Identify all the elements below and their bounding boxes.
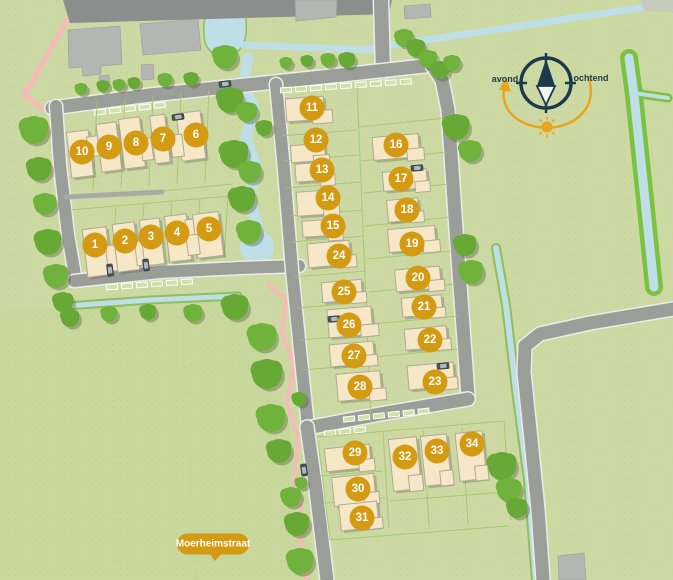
parked-car — [142, 259, 149, 272]
parking-strip — [166, 280, 177, 286]
plot-badge-21[interactable]: 21 — [412, 295, 437, 320]
parking-strip — [181, 279, 192, 285]
plot-number: 1 — [92, 239, 99, 251]
parking-strip — [354, 427, 365, 433]
plot-badge-8[interactable]: 8 — [124, 131, 149, 156]
site-plan-map: 1234567891011121314151617181920212223242… — [0, 0, 673, 580]
plot-badge-3[interactable]: 3 — [139, 225, 164, 250]
parking-strip — [358, 414, 369, 420]
plot-number: 6 — [193, 129, 199, 141]
plot-number: 23 — [429, 376, 442, 388]
parking-strip — [400, 79, 411, 85]
existing-building — [141, 64, 154, 80]
parking-strip — [310, 85, 321, 91]
plot-badge-29[interactable]: 29 — [343, 441, 368, 466]
plot-badge-15[interactable]: 15 — [321, 214, 346, 239]
parking-strip — [154, 102, 165, 108]
plot-badge-28[interactable]: 28 — [348, 375, 373, 400]
plot-number: 7 — [160, 133, 166, 145]
parking-strip — [373, 413, 384, 419]
existing-building — [140, 19, 201, 55]
plot-number: 18 — [401, 204, 414, 216]
plot-badge-14[interactable]: 14 — [316, 186, 341, 211]
plot-number: 24 — [333, 250, 346, 262]
plot-badge-4[interactable]: 4 — [165, 221, 190, 246]
plot-badge-24[interactable]: 24 — [327, 244, 352, 269]
parking-strip — [295, 86, 306, 92]
parking-strip — [280, 87, 291, 93]
plot-number: 34 — [466, 438, 479, 450]
plot-badge-23[interactable]: 23 — [423, 370, 448, 395]
plot-badge-27[interactable]: 27 — [342, 344, 367, 369]
plot-badge-2[interactable]: 2 — [113, 229, 138, 254]
plot-badge-11[interactable]: 11 — [300, 96, 325, 121]
plot-number: 33 — [431, 445, 444, 457]
plot-number: 29 — [349, 447, 362, 459]
plot-number: 21 — [418, 301, 431, 313]
parking-strip — [403, 410, 414, 416]
plot-number: 10 — [76, 146, 89, 158]
house-extension — [428, 279, 445, 291]
parked-car — [411, 165, 423, 172]
street-name-text: Moerheimstraat — [176, 539, 251, 550]
plot-number: 12 — [310, 134, 323, 146]
plot-number: 8 — [133, 137, 140, 149]
house-extension — [415, 180, 431, 192]
parking-strip — [124, 105, 135, 111]
plot-badge-30[interactable]: 30 — [346, 477, 371, 502]
parked-car — [219, 80, 232, 87]
plot-number: 5 — [206, 223, 213, 235]
plot-badge-20[interactable]: 20 — [406, 266, 431, 291]
plot-number: 31 — [356, 512, 369, 524]
parking-strip — [136, 282, 147, 288]
plot-badge-33[interactable]: 33 — [425, 439, 450, 464]
plot-number: 26 — [343, 319, 356, 331]
parking-strip — [151, 281, 162, 287]
parking-strip — [370, 81, 381, 87]
house-extension — [408, 474, 424, 491]
plot-badge-5[interactable]: 5 — [197, 217, 222, 242]
parking-strip — [340, 83, 351, 89]
plot-badge-25[interactable]: 25 — [332, 280, 357, 305]
parking-strip — [343, 416, 354, 422]
plot-number: 27 — [348, 350, 361, 362]
plot-number: 11 — [306, 102, 319, 114]
existing-building — [404, 4, 431, 19]
parking-strip — [121, 283, 132, 289]
parking-strip — [139, 104, 150, 110]
existing-building — [295, 0, 337, 21]
plot-badge-26[interactable]: 26 — [337, 313, 362, 338]
plot-number: 25 — [338, 286, 351, 298]
plot-number: 16 — [390, 139, 403, 151]
compass-east-label: ochtend — [574, 73, 609, 83]
site-plan: 1234567891011121314151617181920212223242… — [0, 0, 673, 580]
plot-badge-1[interactable]: 1 — [83, 233, 108, 258]
plot-badge-6[interactable]: 6 — [184, 123, 209, 148]
plot-badge-31[interactable]: 31 — [350, 506, 375, 531]
plot-number: 30 — [352, 483, 365, 495]
compass-west-label: avond — [492, 74, 519, 84]
plot-badge-18[interactable]: 18 — [395, 198, 420, 223]
plot-number: 14 — [322, 192, 335, 204]
plot-badge-32[interactable]: 32 — [393, 445, 418, 470]
parked-car — [172, 113, 185, 120]
parking-strip — [109, 107, 120, 113]
parking-strip — [106, 284, 117, 290]
plot-number: 4 — [174, 227, 181, 239]
parked-car — [106, 264, 113, 277]
plot-number: 32 — [399, 451, 412, 463]
parking-strip — [355, 82, 366, 88]
plot-badge-17[interactable]: 17 — [389, 167, 414, 192]
plot-number: 2 — [122, 235, 128, 247]
house-extension — [423, 240, 441, 253]
plot-number: 3 — [148, 231, 154, 243]
street — [381, 0, 383, 72]
plot-badge-22[interactable]: 22 — [418, 328, 443, 353]
parking-strip — [418, 408, 429, 414]
plot-number: 20 — [412, 272, 425, 284]
house-extension — [475, 465, 489, 481]
plot-badge-7[interactable]: 7 — [151, 127, 176, 152]
house-extension — [360, 324, 379, 338]
parking-strip — [339, 428, 350, 434]
existing-building — [558, 553, 586, 580]
plot-badge-9[interactable]: 9 — [97, 135, 122, 160]
plot-badge-13[interactable]: 13 — [310, 158, 335, 183]
house-extension — [407, 148, 425, 161]
plot-badge-16[interactable]: 16 — [384, 133, 409, 158]
plot-number: 15 — [327, 220, 340, 232]
plot-number: 28 — [354, 381, 367, 393]
plot-number: 19 — [406, 238, 419, 250]
plot-number: 9 — [106, 141, 112, 153]
plot-badge-12[interactable]: 12 — [304, 128, 329, 153]
parking-strip — [385, 80, 396, 86]
plot-badge-34[interactable]: 34 — [460, 432, 485, 457]
parking-strip — [388, 411, 399, 417]
parked-car — [437, 362, 449, 369]
watercourse — [243, 45, 374, 50]
plot-number: 17 — [395, 173, 408, 185]
house-extension — [440, 470, 454, 486]
plot-number: 13 — [316, 164, 329, 176]
plot-badge-10[interactable]: 10 — [70, 140, 95, 165]
plot-badge-19[interactable]: 19 — [400, 232, 425, 257]
parking-strip — [325, 84, 336, 90]
plot-number: 22 — [424, 334, 437, 346]
